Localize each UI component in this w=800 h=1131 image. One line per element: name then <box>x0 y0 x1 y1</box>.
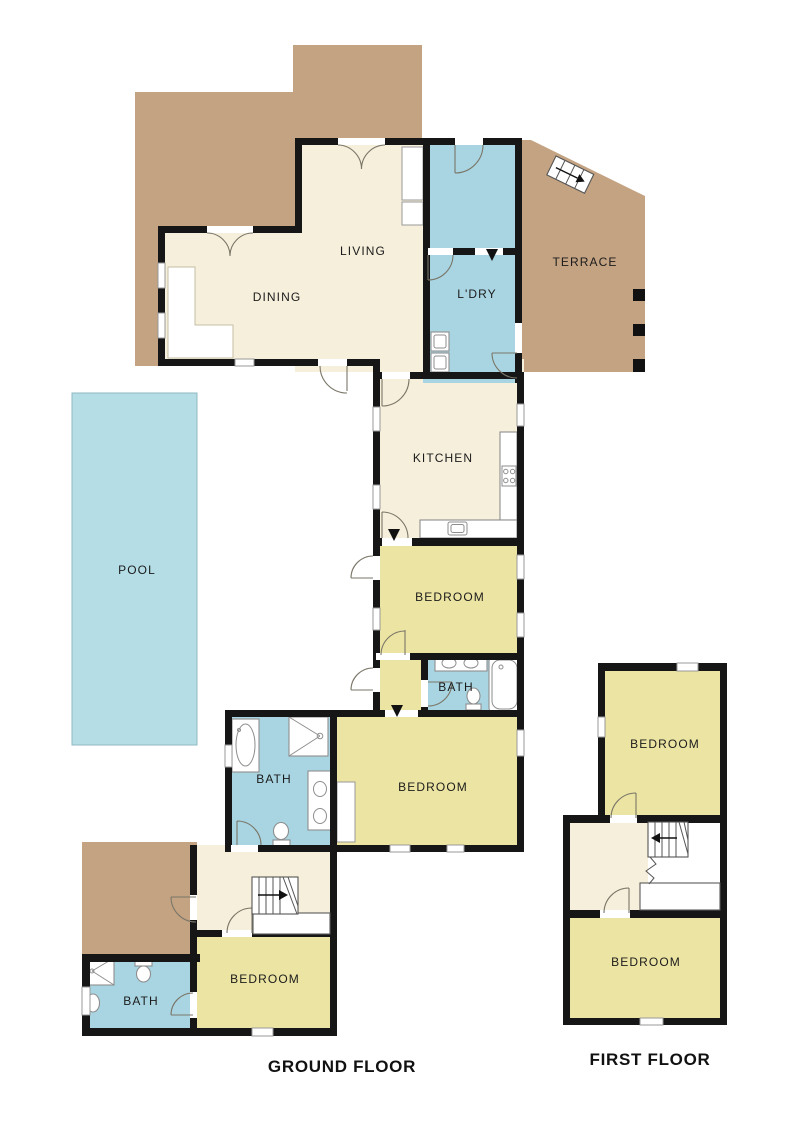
shower-icon <box>88 958 114 985</box>
room-label-terrace: TERRACE <box>552 255 617 269</box>
room-label-living: LIVING <box>340 244 386 258</box>
toilet-icon <box>135 960 152 982</box>
room-fill-landing-ff <box>563 815 648 918</box>
room-label-bath-rear: BATH <box>123 994 159 1008</box>
room-label-bedroom-mid: BEDROOM <box>415 590 485 604</box>
bathtub-icon <box>232 719 259 772</box>
staircase-ground <box>252 877 298 914</box>
room-label-dining: DINING <box>253 290 302 304</box>
room-label-pool: POOL <box>118 563 156 577</box>
room-label-bedroom-rear: BEDROOM <box>230 972 300 986</box>
room-label-bedroom-main: BEDROOM <box>398 780 468 794</box>
room-label-bath-main: BATH <box>256 772 292 786</box>
toilet-icon <box>273 823 290 847</box>
room-label-bedroom-south: BEDROOM <box>611 955 681 969</box>
living-closet-icon <box>402 202 423 225</box>
floor-plan: LIVING DINING L'DRY TERRACE KITCHEN POOL… <box>0 0 800 1131</box>
room-label-bath-ensuite: BATH <box>438 680 474 694</box>
shower-icon <box>289 717 328 756</box>
first-floor-title: FIRST FLOOR <box>589 1050 710 1070</box>
living-closet-icon <box>402 147 423 200</box>
room-label-kitchen: KITCHEN <box>413 451 473 465</box>
vanity-icon <box>308 771 332 830</box>
wardrobe-icon <box>337 782 355 842</box>
bathtub-icon <box>489 657 520 712</box>
room-label-laundry: L'DRY <box>457 287 497 301</box>
room-label-bedroom-north: BEDROOM <box>630 737 700 751</box>
ground-floor-title: GROUND FLOOR <box>268 1057 416 1077</box>
staircase-first-floor <box>646 822 688 884</box>
patio-rear <box>82 842 197 958</box>
stairwell-void-ff <box>640 883 720 910</box>
understair-void <box>253 913 330 934</box>
